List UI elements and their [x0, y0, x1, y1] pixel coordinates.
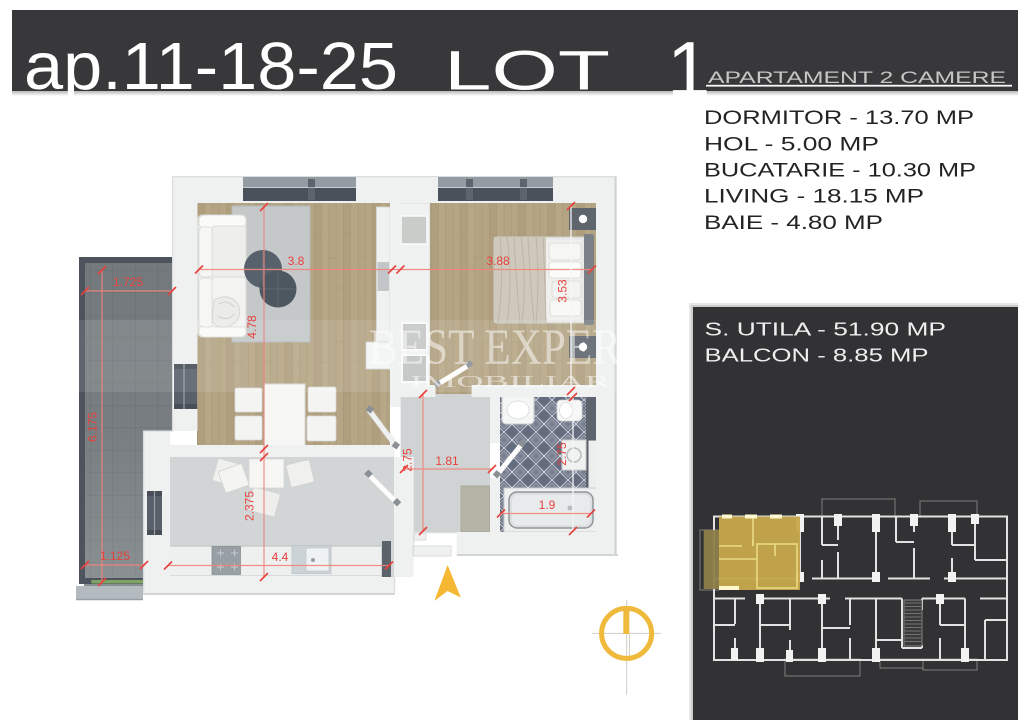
- svg-text:3.53: 3.53: [556, 279, 570, 303]
- svg-text:BAIE - 4.80 MP: BAIE - 4.80 MP: [704, 213, 883, 234]
- svg-text:1.725: 1.725: [113, 275, 143, 289]
- svg-text:1.81: 1.81: [435, 454, 459, 468]
- svg-text:S. UTILA - 51.90 MP: S. UTILA - 51.90 MP: [705, 320, 947, 340]
- svg-text:4.4: 4.4: [272, 550, 289, 564]
- svg-text:IMOBILIAR: IMOBILIAR: [410, 372, 610, 391]
- svg-text:2.75: 2.75: [401, 448, 415, 472]
- svg-text:6.175: 6.175: [86, 412, 100, 442]
- svg-text:1.125: 1.125: [100, 549, 130, 563]
- svg-text:3.88: 3.88: [486, 254, 510, 268]
- svg-text:HOL - 5.00 MP: HOL - 5.00 MP: [704, 135, 879, 156]
- svg-text:DORMITOR - 13.70 MP: DORMITOR - 13.70 MP: [704, 108, 974, 129]
- svg-text:LOT: LOT: [444, 39, 610, 102]
- svg-text:1.9: 1.9: [539, 498, 556, 512]
- svg-text:BALCON - 8.85 MP: BALCON - 8.85 MP: [705, 346, 929, 366]
- svg-text:3.8: 3.8: [288, 254, 305, 268]
- svg-text:ap.11-18-25: ap.11-18-25: [24, 29, 398, 104]
- svg-text:4.78: 4.78: [245, 315, 259, 339]
- svg-text:BEST EXPER: BEST EXPER: [369, 320, 621, 376]
- svg-text:2.375: 2.375: [243, 491, 257, 521]
- svg-text:BUCATARIE - 10.30 MP: BUCATARIE - 10.30 MP: [704, 161, 976, 182]
- svg-text:1: 1: [667, 25, 710, 113]
- svg-text:LIVING - 18.15 MP: LIVING - 18.15 MP: [704, 187, 924, 208]
- svg-text:APARTAMENT 2 CAMERE: APARTAMENT 2 CAMERE: [708, 69, 1006, 87]
- svg-text:2.75: 2.75: [555, 442, 569, 466]
